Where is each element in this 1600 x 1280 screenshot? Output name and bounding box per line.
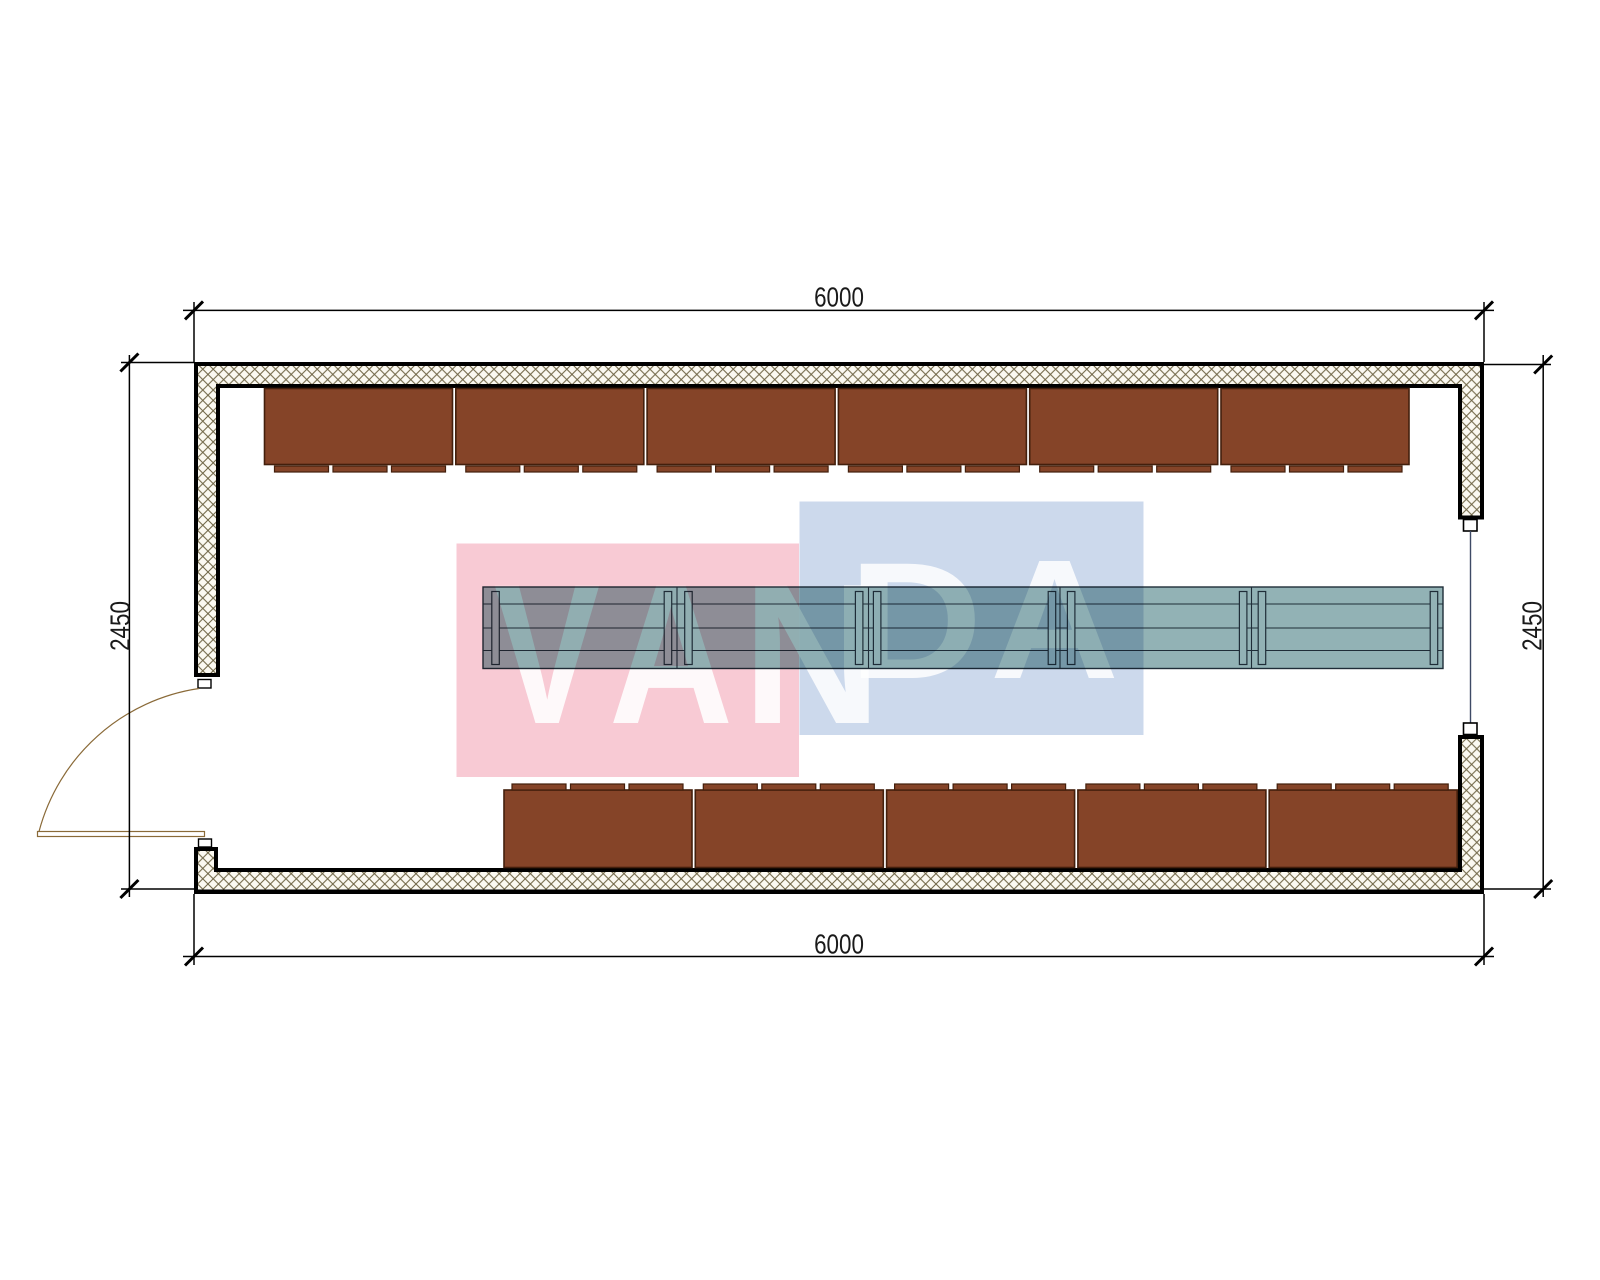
- svg-text:2450: 2450: [105, 601, 136, 651]
- svg-text:6000: 6000: [814, 929, 864, 960]
- svg-text:6000: 6000: [814, 282, 864, 313]
- svg-text:2450: 2450: [1517, 601, 1548, 651]
